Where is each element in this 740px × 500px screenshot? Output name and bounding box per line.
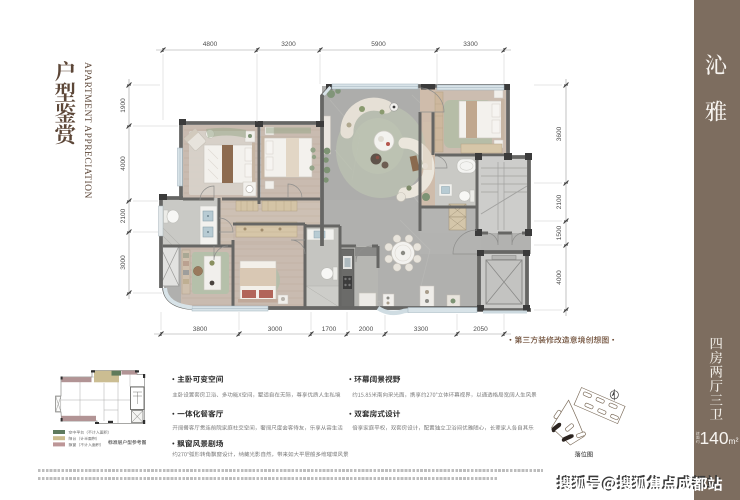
svg-text:4000: 4000 <box>556 270 563 285</box>
svg-text:4000: 4000 <box>120 156 127 171</box>
svg-text:5900: 5900 <box>371 41 386 48</box>
svg-text:2100: 2100 <box>556 194 563 209</box>
svg-text:1700: 1700 <box>322 326 337 333</box>
svg-text:2000: 2000 <box>359 326 374 333</box>
svg-text:3300: 3300 <box>463 41 478 48</box>
svg-text:3000: 3000 <box>120 255 127 270</box>
svg-text:140: 140 <box>700 428 729 448</box>
svg-text:3000: 3000 <box>268 326 283 333</box>
svg-text:3300: 3300 <box>414 326 429 333</box>
svg-text:2050: 2050 <box>473 326 488 333</box>
svg-text:1900: 1900 <box>120 98 127 113</box>
svg-text:3200: 3200 <box>281 41 296 48</box>
svg-text:4800: 4800 <box>203 41 218 48</box>
svg-text:3800: 3800 <box>193 326 208 333</box>
svg-text:1500: 1500 <box>556 225 563 240</box>
svg-text:m²: m² <box>729 436 739 446</box>
svg-text:2100: 2100 <box>120 208 127 223</box>
svg-text:3600: 3600 <box>556 126 563 141</box>
